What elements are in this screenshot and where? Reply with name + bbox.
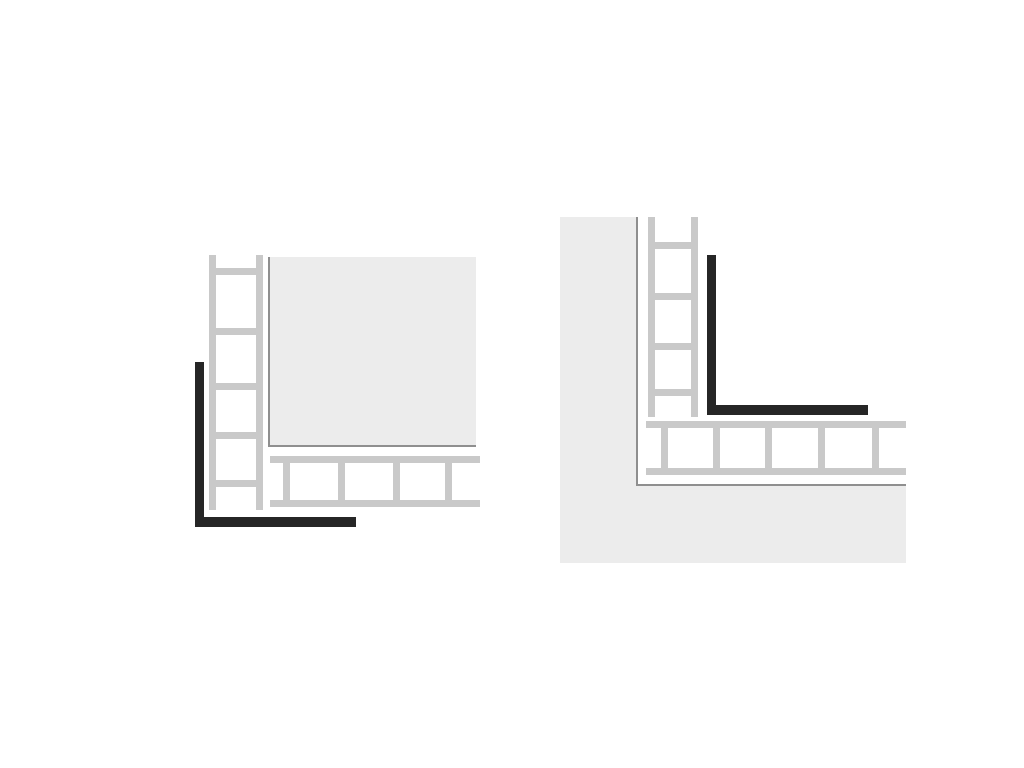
vertical-mesh-rung [648, 389, 698, 396]
horizontal-mesh-bottom-rail [646, 468, 906, 475]
horizontal-mesh-rung [765, 421, 772, 475]
vertical-mesh-rung [648, 242, 698, 249]
wall-vertical-fill [560, 217, 636, 563]
horizontal-mesh-top-rail [646, 421, 906, 428]
horizontal-mesh-rung [713, 421, 720, 475]
corner-profile-horizontal-leg [707, 405, 868, 415]
wall-horizontal-fill [636, 486, 906, 563]
wall-inner-vertical-edge [636, 217, 638, 486]
illustration-canvas [0, 0, 1024, 768]
wall-inner-horizontal-edge [636, 484, 906, 486]
inner-corner-diagram [0, 0, 1024, 768]
horizontal-mesh-rung [661, 421, 668, 475]
corner-profile-vertical-leg [707, 255, 716, 415]
vertical-mesh-rung [648, 293, 698, 300]
horizontal-mesh-rung [872, 421, 879, 475]
horizontal-mesh-rung [818, 421, 825, 475]
vertical-mesh-rung [648, 343, 698, 350]
